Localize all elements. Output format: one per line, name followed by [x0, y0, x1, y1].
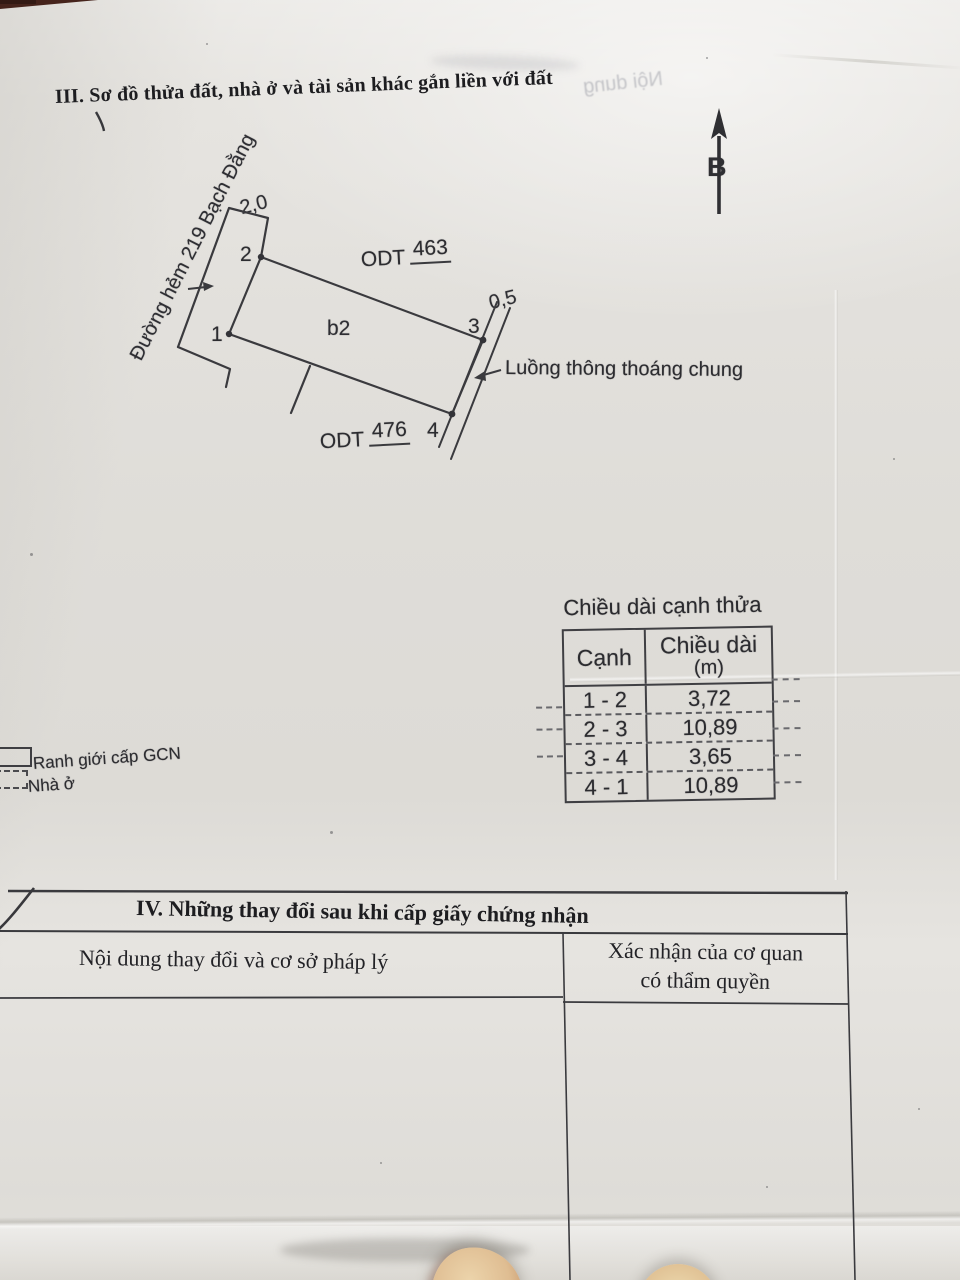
road-boundary-hook: [178, 347, 230, 387]
road-boundary-line: [178, 208, 268, 347]
document-page: Nội dung: [0, 0, 960, 1280]
north-label: B: [707, 152, 727, 183]
adjacent-boundary-line: [291, 366, 310, 413]
vertex-dots: [226, 254, 487, 418]
photo-corner-background-strip: [0, 0, 36, 4]
parcel-outline: [229, 257, 483, 414]
section4-table-lines: [0, 891, 855, 1280]
strip-arrow-icon: [474, 370, 501, 381]
pen-marks: [0, 112, 104, 930]
diagram-linework: [0, 0, 960, 1280]
